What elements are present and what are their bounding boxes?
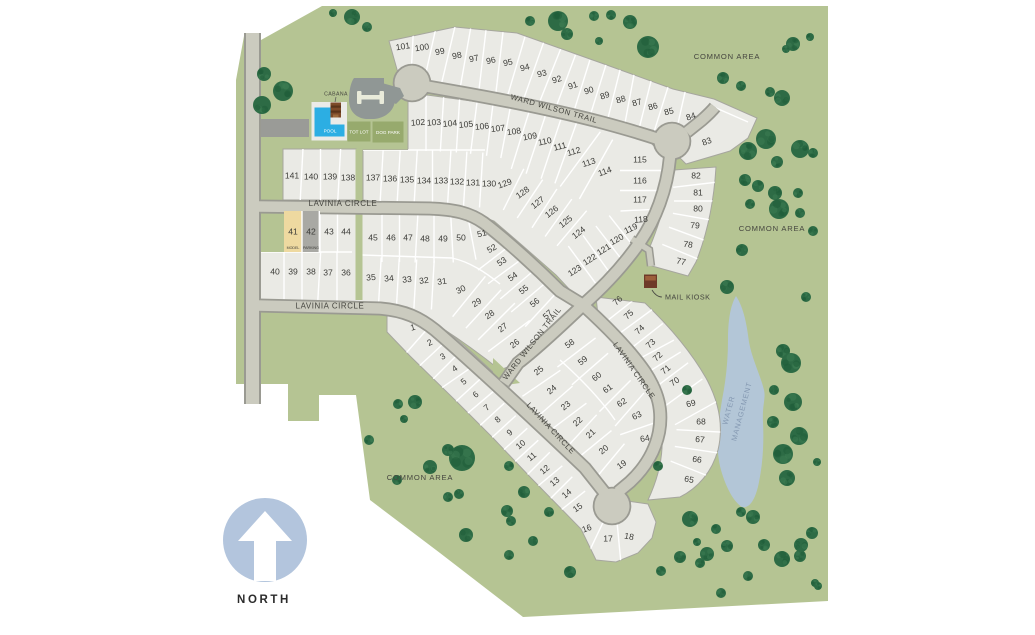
svg-text:107: 107 xyxy=(490,122,506,134)
svg-text:131: 131 xyxy=(466,177,481,187)
svg-text:104: 104 xyxy=(442,118,457,129)
svg-text:81: 81 xyxy=(693,187,703,197)
svg-text:133: 133 xyxy=(434,175,449,185)
svg-text:36: 36 xyxy=(341,267,351,277)
svg-text:141: 141 xyxy=(285,170,300,180)
svg-text:134: 134 xyxy=(417,175,432,185)
svg-text:TOT LOT: TOT LOT xyxy=(349,130,368,135)
svg-text:103: 103 xyxy=(426,117,441,128)
svg-text:135: 135 xyxy=(400,174,415,184)
svg-text:47: 47 xyxy=(403,232,413,242)
svg-text:COMMON AREA: COMMON AREA xyxy=(694,52,761,61)
svg-text:46: 46 xyxy=(386,232,396,242)
svg-text:44: 44 xyxy=(341,226,351,236)
svg-text:50: 50 xyxy=(456,232,466,242)
svg-text:18: 18 xyxy=(624,531,635,543)
svg-text:COMMON AREA: COMMON AREA xyxy=(739,224,806,233)
svg-text:34: 34 xyxy=(384,273,395,284)
svg-text:39: 39 xyxy=(288,266,298,276)
svg-text:66: 66 xyxy=(692,454,703,465)
svg-text:82: 82 xyxy=(691,170,701,180)
svg-text:38: 38 xyxy=(306,266,316,276)
svg-text:42: 42 xyxy=(306,226,316,236)
svg-text:105: 105 xyxy=(458,119,473,130)
svg-text:PARKING: PARKING xyxy=(303,246,319,250)
svg-text:78: 78 xyxy=(683,239,694,250)
svg-text:65: 65 xyxy=(684,474,695,486)
svg-text:31: 31 xyxy=(436,276,447,287)
svg-text:NORTH: NORTH xyxy=(237,594,291,606)
svg-text:49: 49 xyxy=(438,233,448,243)
svg-text:17: 17 xyxy=(603,533,613,543)
svg-text:32: 32 xyxy=(419,275,430,286)
svg-text:136: 136 xyxy=(383,173,398,183)
svg-text:106: 106 xyxy=(474,121,490,132)
svg-text:DOG PARK: DOG PARK xyxy=(376,130,401,135)
svg-text:132: 132 xyxy=(450,176,465,186)
svg-text:140: 140 xyxy=(304,171,319,181)
svg-text:POOL: POOL xyxy=(324,129,337,134)
svg-text:115: 115 xyxy=(633,154,647,164)
svg-text:118: 118 xyxy=(634,214,649,225)
svg-text:33: 33 xyxy=(402,274,413,285)
svg-text:COMMON AREA: COMMON AREA xyxy=(387,473,454,482)
svg-text:108: 108 xyxy=(506,125,522,137)
svg-text:68: 68 xyxy=(696,416,706,426)
svg-text:37: 37 xyxy=(323,267,333,277)
svg-text:64: 64 xyxy=(639,432,650,444)
svg-text:CABANA: CABANA xyxy=(324,92,348,98)
svg-text:MODEL: MODEL xyxy=(287,246,300,250)
svg-text:137: 137 xyxy=(366,172,381,182)
svg-text:117: 117 xyxy=(633,194,647,204)
svg-text:MAIL KIOSK: MAIL KIOSK xyxy=(665,293,710,302)
svg-text:79: 79 xyxy=(690,220,700,230)
svg-text:80: 80 xyxy=(693,203,703,213)
svg-text:41: 41 xyxy=(288,226,298,236)
svg-text:139: 139 xyxy=(323,171,338,181)
svg-text:130: 130 xyxy=(482,178,497,188)
svg-text:102: 102 xyxy=(410,117,425,128)
svg-text:67: 67 xyxy=(695,434,706,445)
svg-text:LAVINIA CIRCLE: LAVINIA CIRCLE xyxy=(309,199,378,208)
svg-text:138: 138 xyxy=(341,172,356,182)
svg-text:43: 43 xyxy=(324,226,334,236)
svg-text:45: 45 xyxy=(368,232,378,242)
svg-text:48: 48 xyxy=(420,233,430,243)
svg-text:LAVINIA CIRCLE: LAVINIA CIRCLE xyxy=(296,302,365,311)
svg-text:35: 35 xyxy=(366,272,377,283)
svg-text:40: 40 xyxy=(270,266,280,276)
svg-text:116: 116 xyxy=(633,175,647,185)
